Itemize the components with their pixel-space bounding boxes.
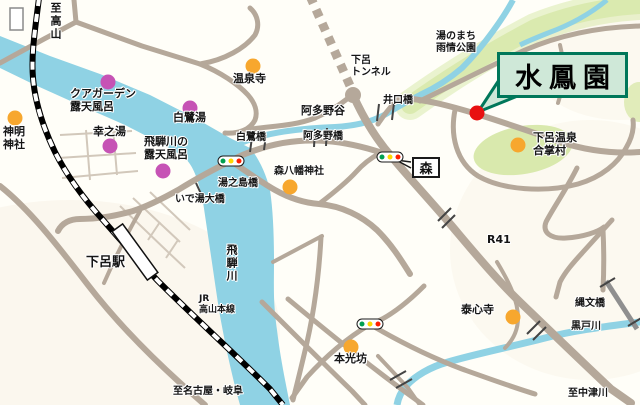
signal-lamp (376, 322, 381, 327)
atanodani-stream: 阿多野谷 (301, 105, 345, 118)
honkobo-label: 本光坊 (334, 353, 367, 366)
kurodo-river: 黒戸川 (571, 321, 601, 333)
gero-tunnel: 下呂 トンネル (351, 55, 391, 79)
iguchi-bridge: 井口橋 (383, 95, 413, 107)
signal-south (357, 319, 384, 330)
to-nagoya-gifu: 至名古屋・岐阜 (173, 386, 243, 398)
shirasagi-yu-label: 白鷺湯 (173, 112, 206, 125)
forest-label-box: 森 (412, 157, 440, 178)
signal-lamp (221, 159, 226, 164)
gero-tunnel-road (310, 0, 361, 103)
suihoen-location-marker (470, 106, 485, 121)
gero-station-label: 下呂駅 (86, 255, 125, 270)
hida-river: 飛騨川 (224, 244, 237, 283)
atano-bridge: 阿多野橋 (303, 131, 343, 143)
signal-yunoshima (218, 156, 245, 167)
signal-lamp (380, 155, 385, 160)
hidagawa-rotenburo-label: 飛騨川の 露天風呂 (144, 136, 188, 162)
gero-onsen-gassho-mura-label: 下呂温泉 合掌村 (533, 132, 577, 158)
taishinji-marker (506, 310, 521, 325)
taishinji-label: 泰心寺 (461, 304, 494, 317)
mori-hachiman-jinja-marker (283, 180, 298, 195)
shirasagi-bridge: 白鷺橋 (236, 132, 266, 144)
yunomachi-ujo-park: 湯のまち 雨情公園 (436, 31, 476, 55)
to-takayama: 至高山 (48, 2, 61, 41)
jr-takayama-line: JR 高山本線 (199, 294, 235, 315)
signal-lamp (388, 155, 393, 160)
onsenji-label: 温泉寺 (233, 73, 266, 86)
yunoshima-bridge: 湯之島橋 (218, 178, 258, 190)
shinmei-jinja-label: 神明 神社 (3, 126, 25, 152)
kua-garden-rotenburo-label: クアガーデン 露天風呂 (70, 88, 136, 114)
gero-onsen-access-map: 水鳳園 森 至高山下呂 トンネル阿多野谷井口橋白鷺橋阿多野橋湯之島橋いで湯大橋湯… (0, 0, 640, 405)
signal-mori (377, 152, 404, 163)
signal-lamp (229, 159, 234, 164)
signal-lamp (396, 155, 401, 160)
ideyu-ohashi-bridge: いで湯大橋 (175, 194, 225, 206)
gero-onsen-gassho-mura-marker (511, 138, 526, 153)
to-nakatsugawa: 至中津川 (568, 388, 608, 400)
hidagawa-rotenburo-marker (156, 164, 171, 179)
jomon-bridge: 縄文橋 (575, 298, 605, 310)
mori-hachiman-jinja-label: 森八幡神社 (274, 166, 324, 178)
sachi-no-yu-marker (103, 139, 118, 154)
route-41: R41 (487, 234, 511, 247)
signal-lamp (360, 322, 365, 327)
signal-lamp (237, 159, 242, 164)
sachi-no-yu-label: 幸之湯 (93, 126, 126, 139)
shinmei-jinja-marker (8, 111, 23, 126)
signal-lamp (368, 322, 373, 327)
building (10, 8, 23, 30)
suihoen-callout: 水鳳園 (497, 52, 628, 98)
